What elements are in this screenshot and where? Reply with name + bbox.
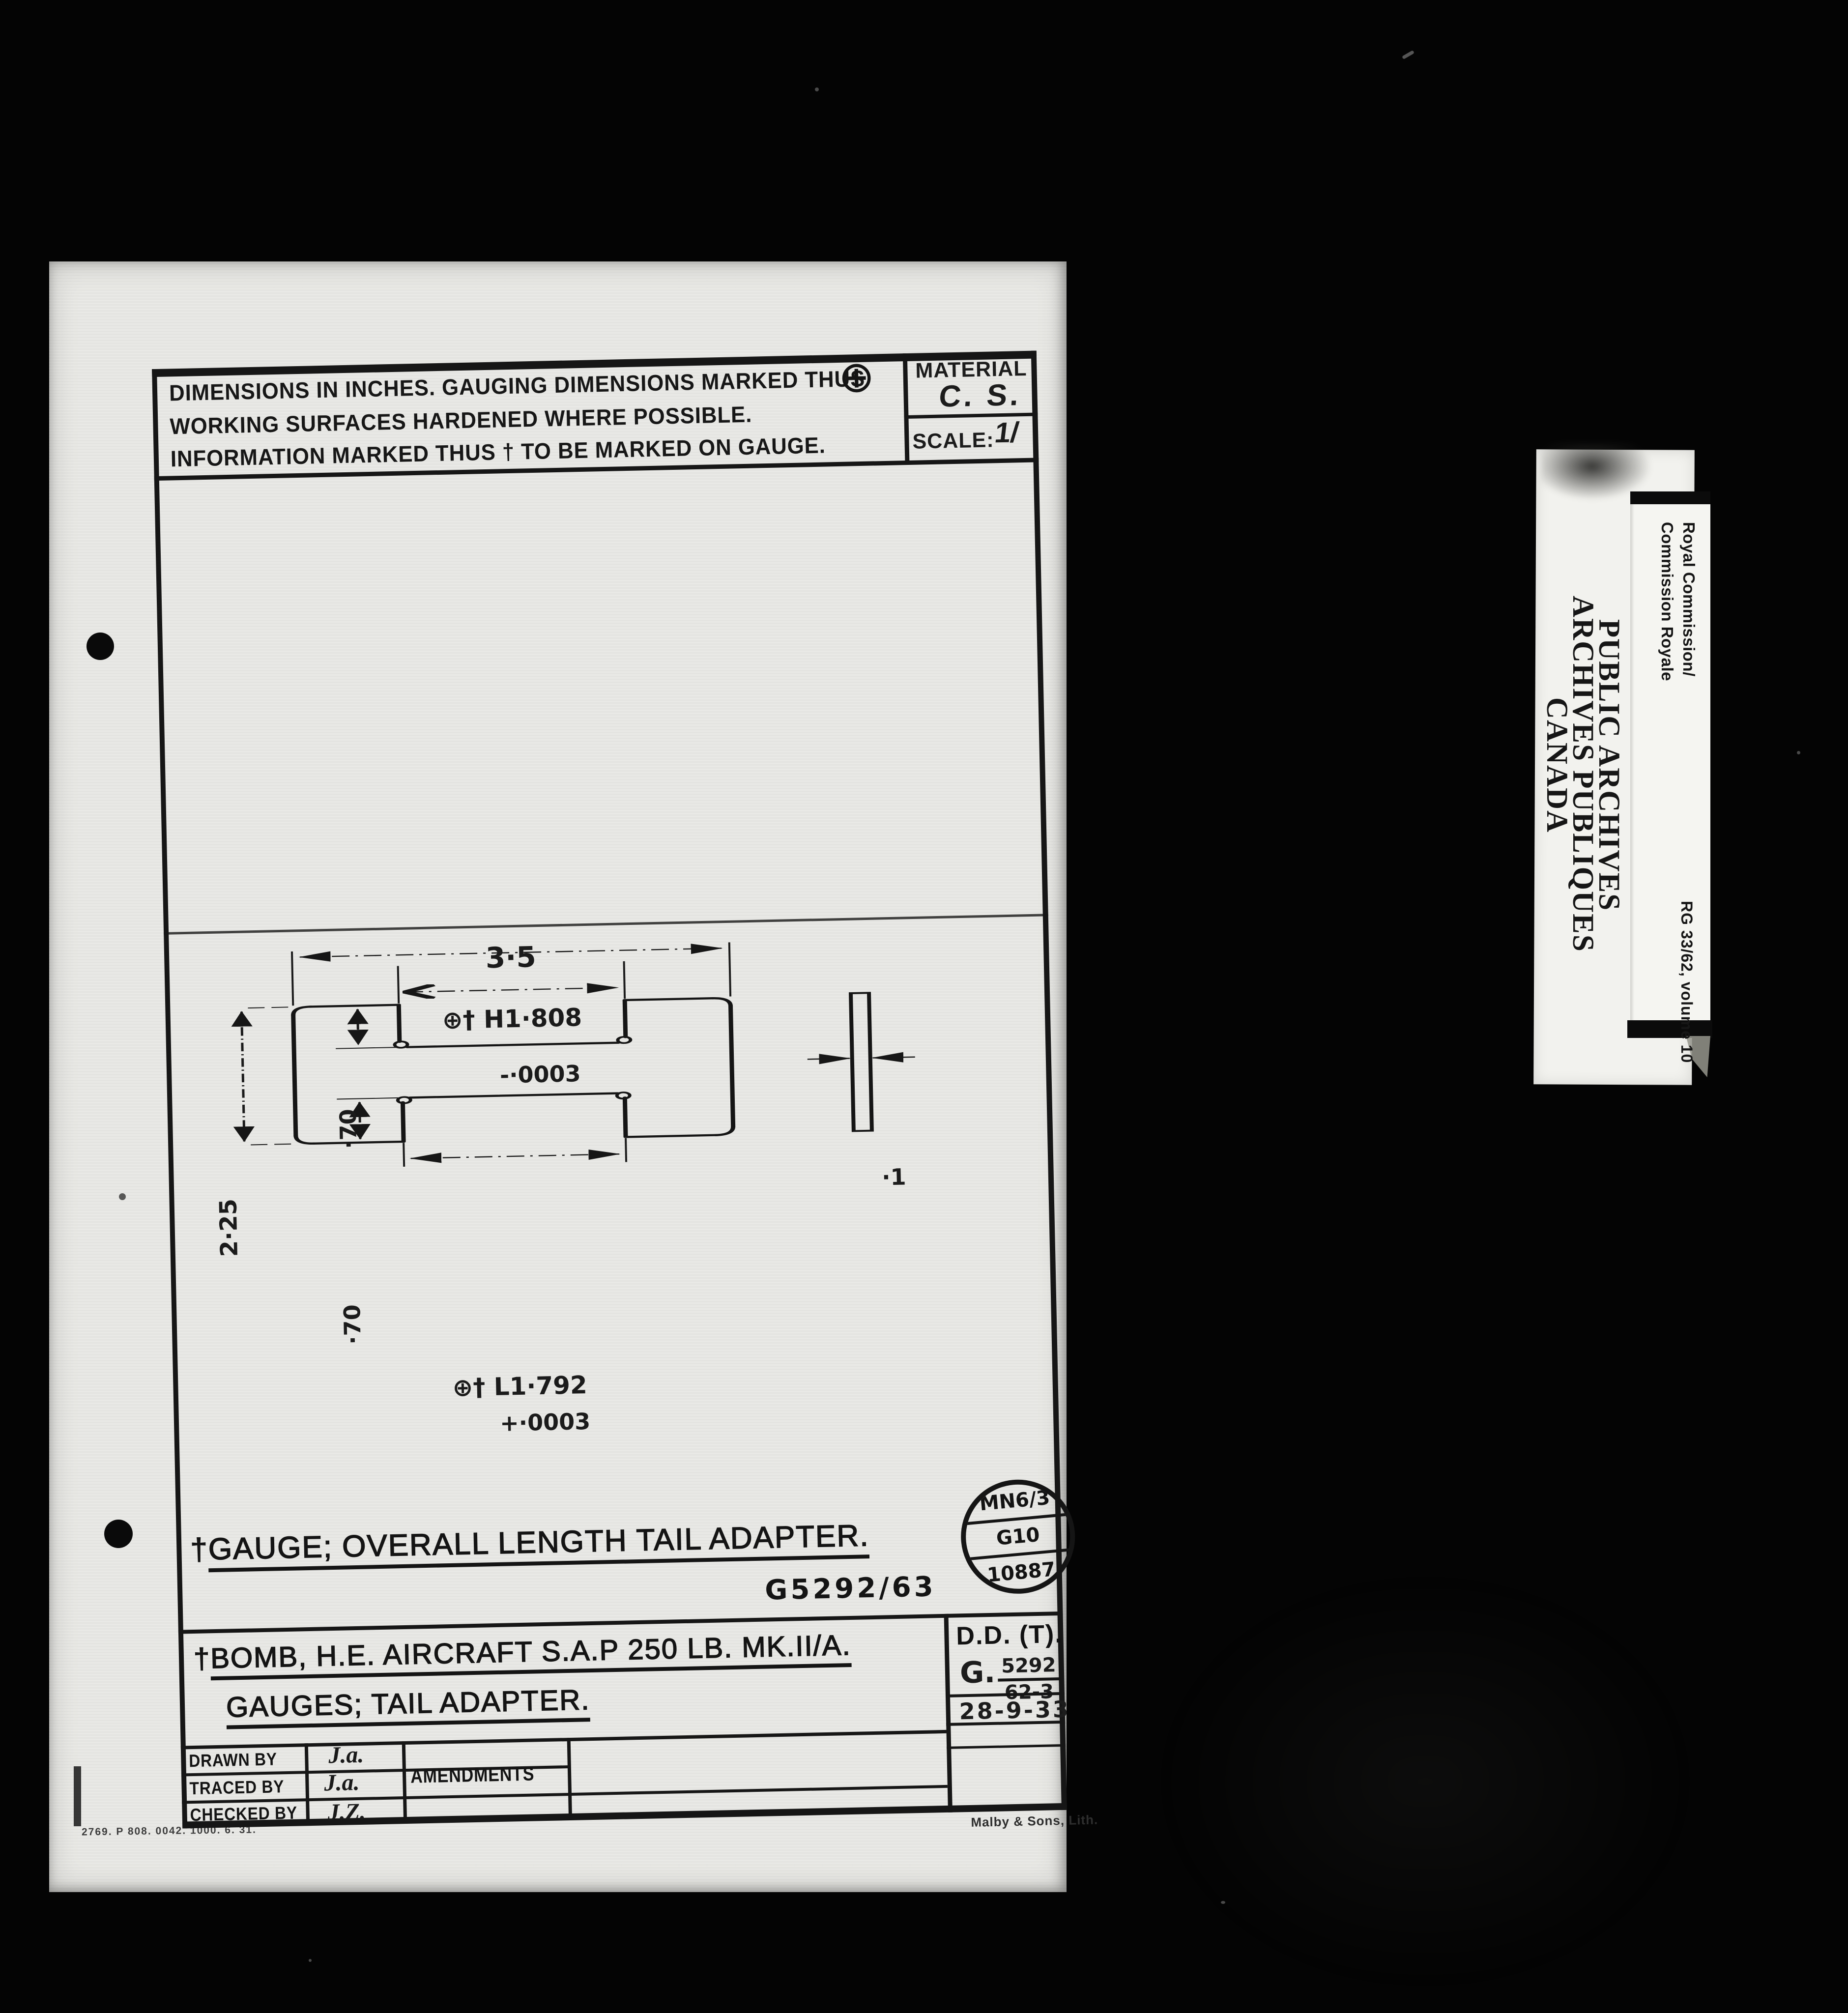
public-archives-line-1: PUBLIC ARCHIVES — [1596, 596, 1622, 935]
signature-checked: J.Z. — [327, 1798, 366, 1826]
punch-hole-bottom — [104, 1520, 133, 1548]
bomb-subtitle-text: GAUGES; TAIL ADAPTER. — [226, 1684, 590, 1729]
bomb-title-dagger: † — [193, 1642, 211, 1675]
dim-slot-low: ⊕† L1·792 — [409, 1370, 631, 1403]
table-label-traced: TRACED BY — [189, 1776, 285, 1799]
dd-office: D.D. (T). — [956, 1619, 1064, 1651]
punch-hole-top — [87, 633, 114, 660]
table-top-rule — [181, 1730, 947, 1750]
card-top-band — [1630, 491, 1710, 504]
dust-speck — [1797, 751, 1800, 754]
bomb-title: †BOMB, H.E. AIRCRAFT S.A.P 250 LB. MK.II… — [193, 1629, 851, 1675]
drawing-sheet: 2769. P 808. 0042. 1000. 6. 31. DIMENSIO… — [49, 261, 1067, 1892]
archive-reference-label: RG 33/62, volume 10 — [1677, 901, 1696, 1063]
signature-traced: J.a. — [324, 1769, 360, 1796]
dim-depth-top: ·70 — [334, 1097, 357, 1161]
signature-drawn: J.a. — [328, 1741, 364, 1769]
frame-border-bottom — [182, 1803, 1067, 1829]
scale-label: SCALE: — [912, 428, 994, 454]
title-block-rule — [178, 1611, 1063, 1634]
dim-slot-high: ⊕† H1·808 — [401, 1002, 623, 1035]
scale-value: 1/ — [993, 416, 1020, 449]
dd-rule-3 — [947, 1744, 1066, 1749]
scan-mark — [74, 1766, 81, 1826]
dust-speck — [1402, 50, 1415, 59]
scan-texture — [1155, 1573, 1696, 1990]
gauge-title-dagger: † — [190, 1532, 209, 1567]
table-label-checked: CHECKED BY — [190, 1803, 297, 1826]
table-col-rule-2 — [402, 1741, 407, 1820]
table-row-rule-2 — [182, 1785, 948, 1804]
dim-thickness: ·1 — [871, 1163, 916, 1191]
royal-commission-line-1: Royal Commission/ — [1678, 522, 1700, 681]
gauge-title: †GAUGE; OVERALL LENGTH TAIL ADAPTER. — [190, 1518, 869, 1567]
drawing-frame: DIMENSIONS IN INCHES. GAUGING DIMENSIONS… — [152, 350, 1067, 1828]
table-col-rule-1 — [305, 1743, 310, 1822]
dust-speck — [1221, 1901, 1225, 1904]
material-cell-divider — [903, 353, 910, 463]
dim-slot-high-tol: -·0003 — [442, 1059, 639, 1090]
dust-speck — [309, 1959, 312, 1962]
bomb-title-text: BOMB, H.E. AIRCRAFT S.A.P 250 LB. MK.II/… — [210, 1629, 852, 1680]
scanned-archive-page: { "colors": { "background": "#040404", "… — [0, 0, 1848, 2013]
dim-depth-bottom: ·70 — [339, 1293, 362, 1357]
dim-slot-low-tol: +·0003 — [447, 1407, 644, 1438]
printer-credit: Malby & Sons, Lith. — [971, 1812, 1098, 1830]
table-col-rule-3 — [567, 1738, 572, 1816]
gauging-symbol-icon: ⊕ — [838, 357, 875, 397]
royal-commission-label: Royal Commission/ Commission Royale — [1656, 522, 1700, 681]
drawing-number: G5292/63 — [765, 1571, 937, 1606]
note-line-2: WORKING SURFACES HARDENED WHERE POSSIBLE… — [170, 401, 752, 440]
public-archives-line-2: ARCHIVES PUBLIQUES — [1570, 596, 1596, 935]
dd-number-top: 5292 — [997, 1654, 1060, 1682]
dust-speck — [815, 87, 819, 91]
amendments-label: AMENDMENTS — [410, 1763, 535, 1788]
card-bottom-band — [1627, 1020, 1712, 1038]
dd-box-left-rule — [944, 1614, 952, 1812]
material-value: C. S. — [938, 377, 1023, 414]
gauge-title-text: GAUGE; OVERALL LENGTH TAIL ADAPTER. — [208, 1519, 869, 1572]
dim-height: 2·25 — [214, 1188, 239, 1267]
ink-dot — [119, 1193, 126, 1200]
royal-commission-line-2: Commission Royale — [1656, 522, 1678, 681]
dd-number-prefix: G. — [959, 1655, 995, 1690]
bomb-subtitle: GAUGES; TAIL ADAPTER. — [226, 1683, 590, 1724]
public-archives-label: PUBLIC ARCHIVES ARCHIVES PUBLIQUES CANAD… — [1544, 596, 1622, 935]
dim-overall-width: 3·5 — [459, 940, 563, 975]
table-label-drawn: DRAWN BY — [189, 1749, 277, 1771]
